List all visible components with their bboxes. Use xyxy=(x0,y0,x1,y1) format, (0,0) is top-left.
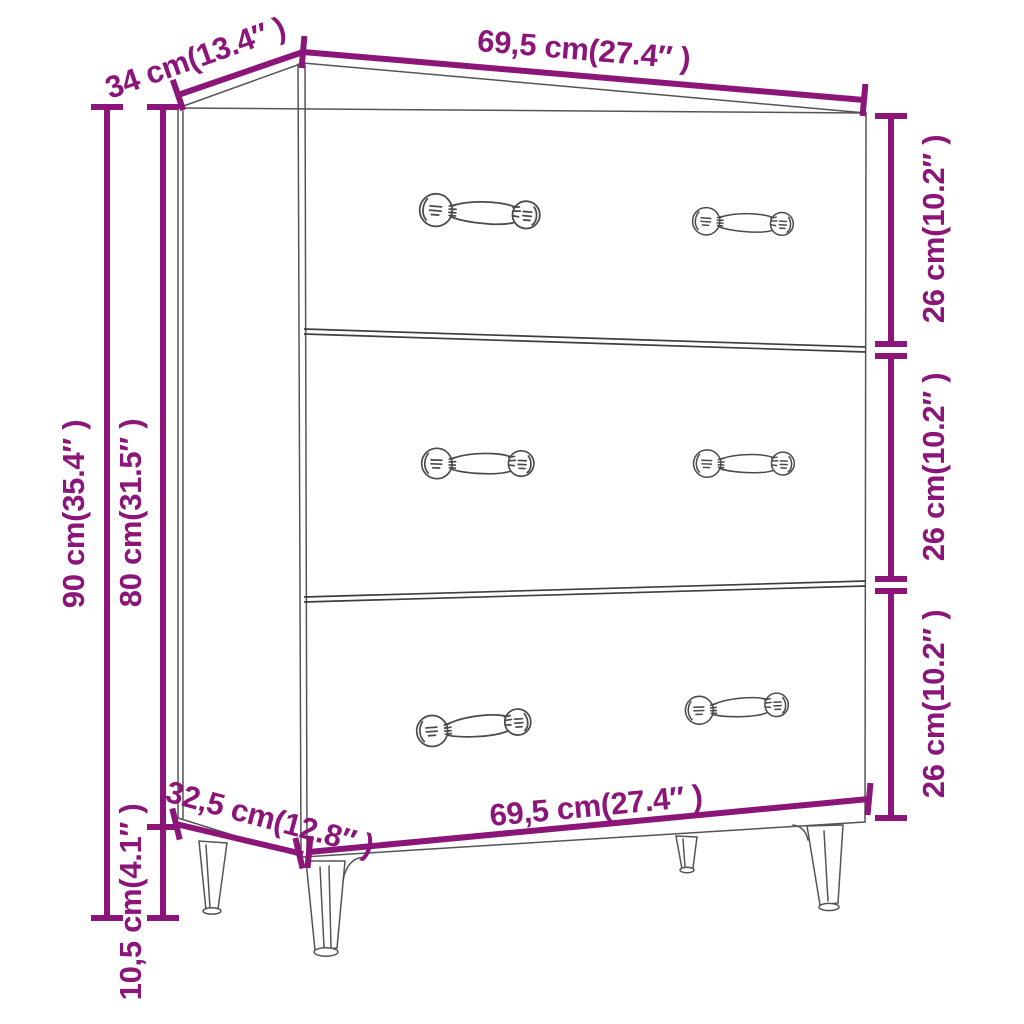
drawer2-handle-right xyxy=(693,449,795,480)
label-height-body: 80 cm(31.5″ ) xyxy=(113,419,148,607)
leg-front-left xyxy=(306,857,364,956)
drawer2-handle-left xyxy=(421,447,534,482)
label-height-total: 90 cm(35.4″ ) xyxy=(56,420,91,608)
dimension-line-drawer3-height xyxy=(875,591,907,818)
divider-drawer2-drawer3 xyxy=(304,581,866,602)
label-drawer3-height: 26 cm(10.2″ ) xyxy=(916,610,951,798)
divider-drawer1-drawer2 xyxy=(304,329,866,352)
label-drawer2-height: 26 cm(10.2″ ) xyxy=(916,373,951,561)
cabinet-rear-left-edge xyxy=(178,108,183,819)
cabinet-top-back-edge xyxy=(178,108,866,113)
sideboard-dimension-diagram: 69,5 cm(27.4″ ) 34 cm(13.4″ ) 26 cm(10.2… xyxy=(0,0,1024,1024)
dimension-line-leg-height xyxy=(147,827,179,918)
cabinet-front-left-edge xyxy=(298,64,307,857)
label-depth-bottom: 32,5 cm(12.8″ ) xyxy=(162,774,377,863)
dimension-line-drawer2-height xyxy=(875,356,907,579)
leg-rear-left xyxy=(199,841,227,914)
dimension-line-height-body xyxy=(147,107,179,827)
drawer3-handle-left xyxy=(416,708,532,747)
drawer1-handle-left xyxy=(418,192,541,235)
label-leg-height: 10,5 cm(4.1″ ) xyxy=(113,804,148,1001)
dimension-line-drawer1-height xyxy=(875,116,907,344)
drawer3-handle-right xyxy=(685,693,789,725)
drawer1-handle-right xyxy=(692,206,794,241)
dimension-diagram-canvas: 69,5 cm(27.4″ ) 34 cm(13.4″ ) 26 cm(10.2… xyxy=(0,0,1024,1024)
leg-front-right xyxy=(793,825,843,911)
cabinet-right-edge xyxy=(865,113,866,822)
label-drawer1-height: 26 cm(10.2″ ) xyxy=(916,135,951,323)
drawer-handles xyxy=(416,192,795,748)
cabinet-top-front-edge xyxy=(303,63,866,113)
leg-rear-right xyxy=(676,836,697,873)
